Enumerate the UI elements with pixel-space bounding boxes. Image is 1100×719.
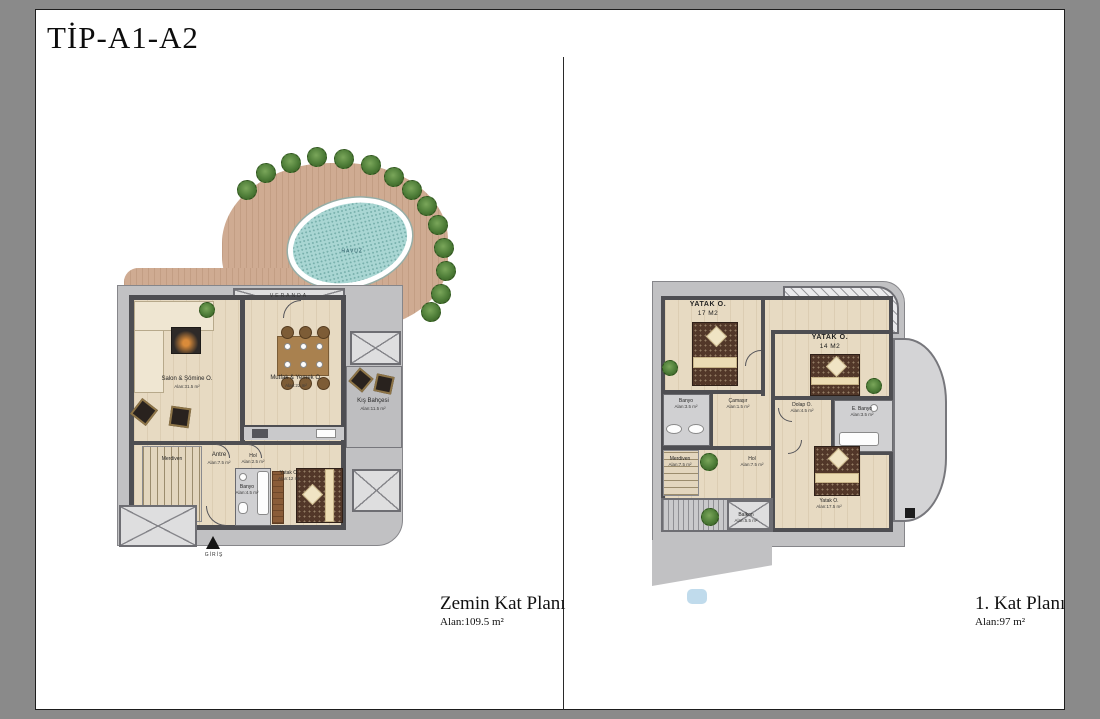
plate [300,343,307,350]
room-label-hol: Hol Alan:2.5 m² [240,453,266,465]
tree-icon [334,149,354,169]
plan-area: Alan:97 m² [975,616,1065,628]
room-label-banyo: Banyo Alan:4.5 m² [234,484,260,496]
sheet-title: TİP-A1-A2 [47,20,199,56]
room-area: Alan:11.5 m² [344,406,402,412]
pillow [828,448,849,469]
tree-icon [361,155,381,175]
chair [373,373,394,394]
room-name: YATAK O. [798,334,862,343]
tree-icon [256,163,276,183]
chair [317,326,330,339]
room-label-dolap: Dolap O. Alan:4.5 m² [776,402,828,414]
plate [284,361,291,368]
room-label-antre: Antre Alan:7.5 m² [198,452,240,465]
tree-icon [281,153,301,173]
room-name: Kış Bahçesi [344,398,402,406]
tree-icon [417,196,437,216]
room-area: Alan:4.5 m² [776,408,828,414]
room-area: Alan:2.5 m² [240,459,266,465]
plant-icon [701,508,719,526]
tree-icon [402,180,422,200]
drawing-sheet: TİP-A1-A2 HAVUZ VERANDA [0,0,1100,719]
bed-runner [693,357,737,368]
room-label-yatak14: YATAK O. 14 M2 [798,334,862,351]
pillow [826,356,847,377]
room-area: Alan:7.5 m² [658,462,702,468]
plate [316,361,323,368]
dining-table [277,336,329,376]
chair [281,326,294,339]
bed [810,354,860,396]
room-area: Alan:3.5 m² [663,404,709,410]
tree-icon [237,180,257,200]
interior-wall [761,296,765,396]
plan-title: Zemin Kat Planı [440,593,566,615]
room-label-camasir: Çamaşır Alan:1.5 m² [712,398,764,410]
room-label-balkon: Balkon Alan:5.5 m² [722,512,770,524]
plan-area: Alan:109.5 m² [440,616,566,628]
room-name: Salon & Şömine O. [137,376,237,384]
room-area: Alan:31.5 m² [137,384,237,390]
tree-icon [431,284,451,304]
room-label-hol2: Hol Alan:7.5 m² [737,456,767,468]
pool-label: HAVUZ [294,249,410,255]
room-label-merdiven: Merdiven [142,456,202,462]
room-name: Mutfak & Yemek O. [248,375,344,383]
plant-icon [866,378,882,394]
room-label-yatak3: Yatak O. Alan:17.5 m² [800,498,858,510]
pillow [706,326,727,347]
ground-caption: Zemin Kat Planı Alan:109.5 m² [440,593,566,628]
fireplace [171,327,201,354]
room-area: Alan:12 m² [274,476,304,482]
sink [239,473,247,481]
veranda-label: VERANDA [233,293,345,299]
sink [688,424,704,434]
room-name: Antre [198,452,240,460]
bed [692,322,738,386]
sink [666,424,682,434]
plant-icon [662,360,678,376]
room-label-salon: Salon & Şömine O. Alan:31.5 m² [137,376,237,389]
pillow [302,484,323,505]
room-label-banyo2: Banyo Alan:3.5 m² [663,398,709,410]
interior-wall [129,441,346,445]
armchair [169,406,192,429]
tree-icon [428,215,448,235]
blue-mark [687,589,707,604]
entrance-arrow-icon [206,536,220,549]
bed-runner [815,473,859,483]
tree-icon [436,261,456,281]
chair [299,326,312,339]
room-area: Alan:4.5 m² [234,490,260,496]
first-caption: 1. Kat Planı Alan:97 m² [975,593,1065,628]
stove [252,429,268,438]
bathtub [839,432,879,446]
room-area: 14 M2 [798,343,862,351]
plant-icon [700,453,718,471]
sink [316,429,336,438]
roof-wing [893,338,947,522]
room-area: Alan:7.5 m² [198,460,240,466]
interior-wall [240,295,245,445]
chimney [905,508,915,518]
tree-icon [421,302,441,322]
room-label-ebanyo: E. Banyo Alan:3.5 m² [834,406,890,418]
room-name: YATAK O. [676,301,740,310]
plate [300,361,307,368]
room-label-yatak17: YATAK O. 17 M2 [676,301,740,318]
room-label-yatak: Yatak O. Alan:12 m² [274,470,304,482]
room-area: 17 M2 [676,310,740,318]
terrace-panel [352,469,401,512]
room-name: Merdiven [142,456,202,462]
plant-icon [199,302,215,318]
room-area: Alan:22 m² [248,383,344,389]
room-label-kis-bahcesi: Kış Bahçesi Alan:11.5 m² [344,398,402,411]
room-area: Alan:7.5 m² [737,462,767,468]
plan-title: 1. Kat Planı [975,593,1065,615]
room-label-mutfak: Mutfak & Yemek O. Alan:22 m² [248,375,344,388]
entrance-label: GİRİŞ [194,552,234,558]
toilet [238,502,248,514]
terrace-panel [119,505,197,547]
bed-runner [811,377,859,385]
room-area: Alan:1.5 m² [712,404,764,410]
terrace-panel [350,331,401,365]
bed-runner [325,469,334,522]
bed [814,446,860,496]
tree-icon [434,238,454,258]
plate [284,343,291,350]
tree-icon [384,167,404,187]
room-area: Alan:17.5 m² [800,504,858,510]
room-area: Alan:3.5 m² [834,412,890,418]
tree-icon [307,147,327,167]
room-area: Alan:5.5 m² [722,518,770,524]
plate [316,343,323,350]
room-label-merdiven2: Merdiven Alan:7.5 m² [658,456,702,468]
